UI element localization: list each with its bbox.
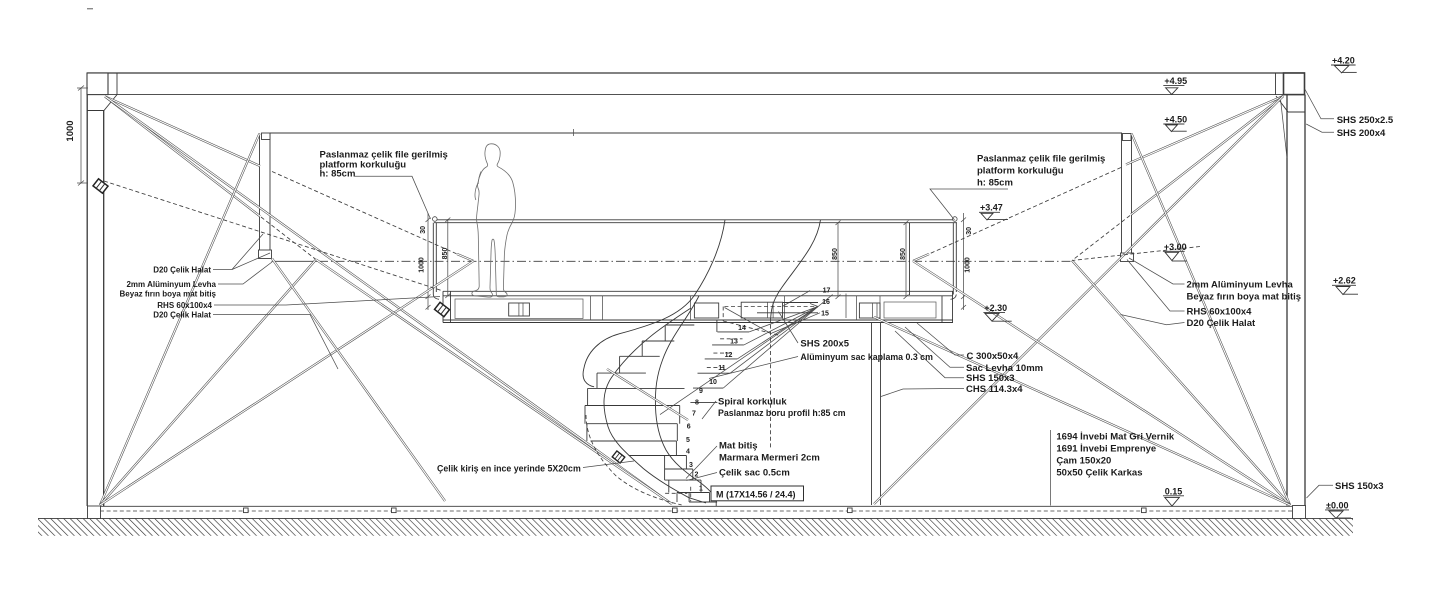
svg-text:2mm Alüminyum Levha: 2mm Alüminyum Levha xyxy=(126,280,216,289)
svg-text:1694 İnvebi Mat Gri Vernik: 1694 İnvebi Mat Gri Vernik xyxy=(1056,432,1174,443)
svg-text:SHS 250x2.5: SHS 250x2.5 xyxy=(1337,115,1394,126)
svg-text:9: 9 xyxy=(699,388,703,395)
svg-text:+2.30: +2.30 xyxy=(984,303,1007,313)
svg-text:+2.62: +2.62 xyxy=(1333,276,1356,286)
svg-text:Marmara Mermeri 2cm: Marmara Mermeri 2cm xyxy=(719,453,820,464)
svg-text:Sac Levha 10mm: Sac Levha 10mm xyxy=(966,363,1043,374)
svg-text:CHS 114.3x4: CHS 114.3x4 xyxy=(966,384,1023,395)
svg-text:Alüminyum sac kaplama 0.3 cm: Alüminyum sac kaplama 0.3 cm xyxy=(800,352,933,362)
svg-text:10: 10 xyxy=(709,379,717,386)
svg-text:SHS 200x5: SHS 200x5 xyxy=(800,339,849,350)
svg-text:12: 12 xyxy=(725,352,733,359)
svg-text:SHS 200x4: SHS 200x4 xyxy=(1337,128,1386,139)
svg-text:1691 İnvebi Emprenye: 1691 İnvebi Emprenye xyxy=(1056,444,1156,455)
svg-text:7: 7 xyxy=(692,410,696,417)
svg-text:Spiral korkuluk: Spiral korkuluk xyxy=(718,397,787,408)
svg-text:C 300x50x4: C 300x50x4 xyxy=(967,351,1019,362)
svg-text:3: 3 xyxy=(689,462,693,469)
svg-text:SHS 150x3: SHS 150x3 xyxy=(1335,481,1384,492)
svg-text:Çelik kiriş en ince yerinde 5X: Çelik kiriş en ince yerinde 5X20cm xyxy=(437,464,581,474)
svg-text:Beyaz fırın boya mat bitiş: Beyaz fırın boya mat bitiş xyxy=(120,290,217,299)
svg-text:14: 14 xyxy=(738,325,746,332)
svg-text:1000: 1000 xyxy=(65,120,76,141)
svg-text:+3.47: +3.47 xyxy=(980,203,1003,213)
svg-text:11: 11 xyxy=(718,365,726,372)
svg-text:13: 13 xyxy=(730,339,738,346)
svg-text:+3.00: +3.00 xyxy=(1164,242,1187,252)
svg-text:D20 Çelik Halat: D20 Çelik Halat xyxy=(153,311,211,320)
svg-text:RHS 60x100x4: RHS 60x100x4 xyxy=(1187,307,1253,318)
svg-text:Paslanmaz boru profil h:85 cm: Paslanmaz boru profil h:85 cm xyxy=(718,408,846,418)
svg-text:50x50 Çelik Karkas: 50x50 Çelik Karkas xyxy=(1056,468,1142,479)
svg-text:30: 30 xyxy=(966,227,973,235)
svg-text:h: 85cm: h: 85cm xyxy=(977,178,1013,189)
svg-text:Paslanmaz çelik file gerilmiş: Paslanmaz çelik file gerilmiş xyxy=(977,154,1105,165)
svg-text:1000: 1000 xyxy=(419,257,426,273)
svg-text:M (17X14.56 / 24.4): M (17X14.56 / 24.4) xyxy=(716,489,796,499)
svg-text:platform korkuluğu: platform korkuluğu xyxy=(977,166,1064,177)
svg-text:SHS 150x3: SHS 150x3 xyxy=(966,373,1015,384)
svg-text:17: 17 xyxy=(823,288,831,295)
svg-text:1000: 1000 xyxy=(965,257,972,273)
svg-text:D20 Çelik Halat: D20 Çelik Halat xyxy=(153,266,211,275)
svg-text:15: 15 xyxy=(821,311,829,318)
svg-text:h: 85cm: h: 85cm xyxy=(320,169,356,180)
svg-text:Mat bitiş: Mat bitiş xyxy=(719,441,758,452)
svg-text:±0.00: ±0.00 xyxy=(1326,500,1348,510)
svg-text:4: 4 xyxy=(686,448,690,455)
svg-text:+4.50: +4.50 xyxy=(1164,115,1187,125)
svg-text:6: 6 xyxy=(687,423,691,430)
svg-text:850: 850 xyxy=(442,248,449,260)
svg-text:1: 1 xyxy=(699,486,703,493)
svg-text:Çam 150x20: Çam 150x20 xyxy=(1056,456,1111,467)
svg-text:D20 Çelik Halat: D20 Çelik Halat xyxy=(1187,318,1256,329)
svg-text:+4.95: +4.95 xyxy=(1164,76,1187,86)
svg-text:0.15: 0.15 xyxy=(1165,486,1183,496)
svg-text:Çelik sac 0.5cm: Çelik sac 0.5cm xyxy=(719,468,790,479)
svg-text:5: 5 xyxy=(686,437,690,444)
svg-text:16: 16 xyxy=(822,299,830,306)
svg-text:850: 850 xyxy=(832,248,839,260)
svg-text:Beyaz fırın boya mat bitiş: Beyaz fırın boya mat bitiş xyxy=(1187,292,1302,303)
svg-text:2mm Alüminyum Levha: 2mm Alüminyum Levha xyxy=(1187,280,1294,291)
svg-text:RHS 60x100x4: RHS 60x100x4 xyxy=(157,301,212,310)
svg-text:30: 30 xyxy=(420,226,427,234)
svg-text:8: 8 xyxy=(695,400,699,407)
svg-text:+4.20: +4.20 xyxy=(1332,56,1355,66)
svg-text:850: 850 xyxy=(900,248,907,260)
